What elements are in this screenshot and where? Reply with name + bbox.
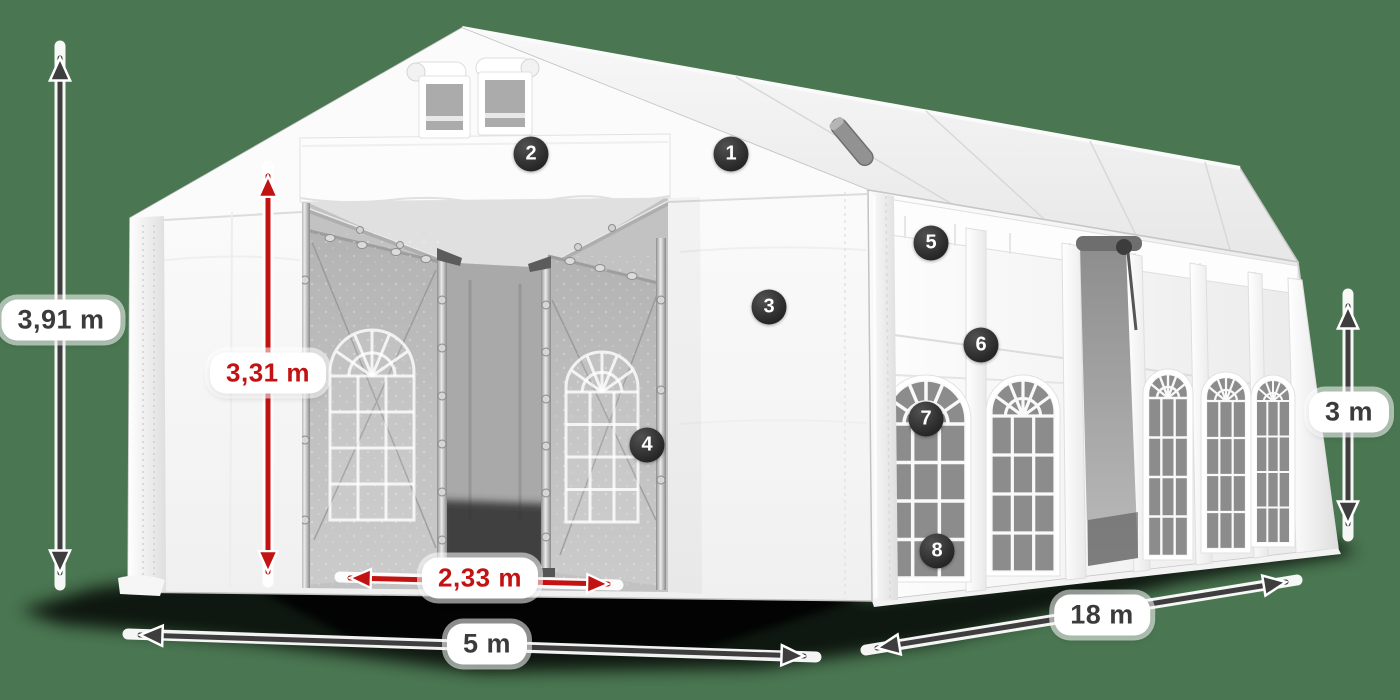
- part-badge-6: 6: [964, 328, 999, 363]
- label-entrance-width: 2,33 m: [422, 558, 538, 599]
- part-badge-7: 7: [909, 402, 944, 437]
- front-left-column: [128, 216, 166, 592]
- part-badge-2: 2: [514, 137, 549, 172]
- tent-illustration: [0, 0, 1400, 700]
- tent-dimension-diagram: 3,91 m 3,31 m 2,33 m 5 m 18 m 3 m 1 2 3 …: [0, 0, 1400, 700]
- label-wall-height: 3 m: [1309, 392, 1389, 433]
- gable-vent-right: [476, 58, 539, 135]
- part-badge-4: 4: [630, 428, 665, 463]
- part-badge-3: 3: [752, 290, 787, 325]
- part-badge-8: 8: [920, 534, 955, 569]
- label-front-width: 5 m: [447, 624, 527, 665]
- part-badge-5: 5: [914, 226, 949, 261]
- label-side-length: 18 m: [1054, 595, 1150, 636]
- label-inner-height: 3,31 m: [210, 353, 326, 394]
- front-opening-interior: [300, 196, 668, 592]
- label-total-height: 3,91 m: [1, 300, 120, 341]
- part-badge-1: 1: [714, 137, 749, 172]
